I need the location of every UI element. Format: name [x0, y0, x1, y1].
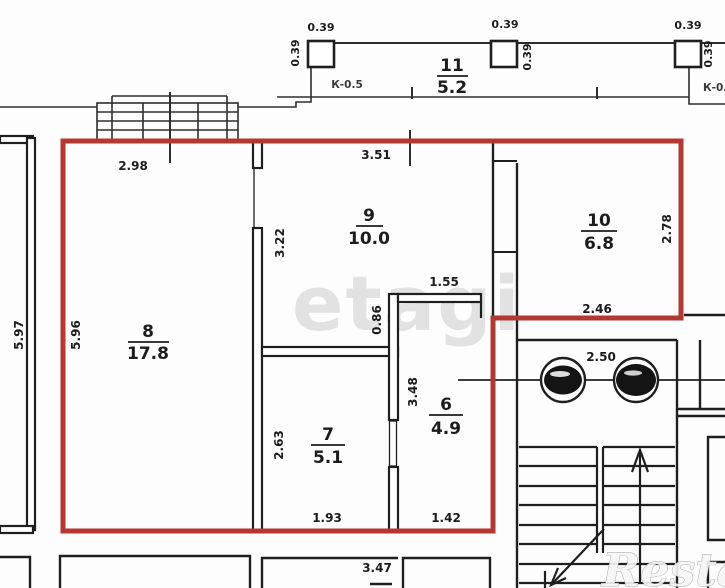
dim-room6-bottom: 1.42: [431, 511, 461, 525]
room-10-area: 6.8: [584, 234, 614, 254]
dim-niche-width: 1.55: [429, 275, 459, 289]
room-11-area: 5.2: [437, 78, 467, 98]
room-10-number: 10: [587, 211, 611, 231]
wall-room9-room10: [493, 141, 517, 588]
dim-room7-bottom: 1.93: [312, 511, 342, 525]
down-arrow-icon: [545, 529, 604, 588]
window-room8: [97, 96, 238, 140]
vent-shaft-left-circle: [541, 358, 585, 402]
dim-pillar1-top: 0.39: [307, 21, 334, 34]
wall-room8-room9: [253, 141, 262, 531]
watermark-etagi: etagi: [292, 259, 522, 348]
label-k05-left: К-0.5: [331, 79, 363, 91]
room-7-number: 7: [322, 425, 334, 445]
dim-room9-top: 3.51: [361, 148, 391, 162]
room-8-label: 8 17.8: [127, 322, 169, 364]
dim-pillar3-top: 0.39: [674, 19, 701, 32]
dim-pillar2-top: 0.39: [491, 18, 518, 31]
watermark-restate: Restate: [600, 543, 725, 588]
floor-plan: etagi: [0, 0, 725, 588]
vent-shaft-right-circle: [614, 358, 658, 402]
wall-niche: [398, 294, 481, 302]
pillar-square-left: [308, 41, 334, 67]
pillar-square-middle: [491, 41, 517, 67]
label-k05-right: К-0.5: [703, 82, 725, 94]
room-10-label: 10 6.8: [581, 211, 617, 254]
dim-left-outer: 5.97: [12, 320, 26, 350]
dim-room10-right: 2.78: [660, 214, 674, 244]
door-room7: [390, 421, 397, 466]
dim-niche-height: 0.86: [370, 305, 384, 335]
dim-pillar2-side: 0.39: [521, 43, 534, 70]
room-9-area: 10.0: [348, 229, 390, 249]
neighbor-structures: [0, 136, 725, 588]
room-9-label: 9 10.0: [348, 206, 390, 249]
room-11-label: 11 5.2: [437, 56, 468, 98]
dim-pillar1-side: 0.39: [289, 39, 302, 66]
room-8-area: 17.8: [127, 344, 169, 364]
room-6-number: 6: [440, 395, 452, 415]
room-8-number: 8: [142, 322, 154, 342]
pillar-square-right: [675, 41, 701, 67]
dim-room10-bottom: 2.46: [582, 302, 612, 316]
apartment-walls: [253, 141, 517, 588]
room-7-area: 5.1: [313, 448, 343, 468]
dim-left-inner: 5.96: [69, 320, 83, 350]
dim-landing-width: 2.50: [586, 350, 616, 364]
balcony-pillars: [308, 41, 701, 67]
dim-bottom-section: 3.47: [362, 561, 392, 575]
dim-room9-left: 3.22: [273, 228, 287, 258]
dim-room6-left: 3.48: [406, 377, 420, 407]
room-6-label: 6 4.9: [429, 395, 463, 439]
dim-pillar3-side: 0.39: [702, 40, 715, 67]
room-7-label: 7 5.1: [311, 425, 345, 468]
wall-room7-room6: [389, 294, 398, 531]
room-6-area: 4.9: [431, 419, 461, 439]
room-11-number: 11: [440, 56, 464, 76]
wall-room9-room7: [262, 347, 398, 356]
dim-room7-left: 2.63: [272, 430, 286, 460]
dim-room8-top: 2.98: [118, 159, 148, 173]
room-9-number: 9: [363, 206, 375, 226]
